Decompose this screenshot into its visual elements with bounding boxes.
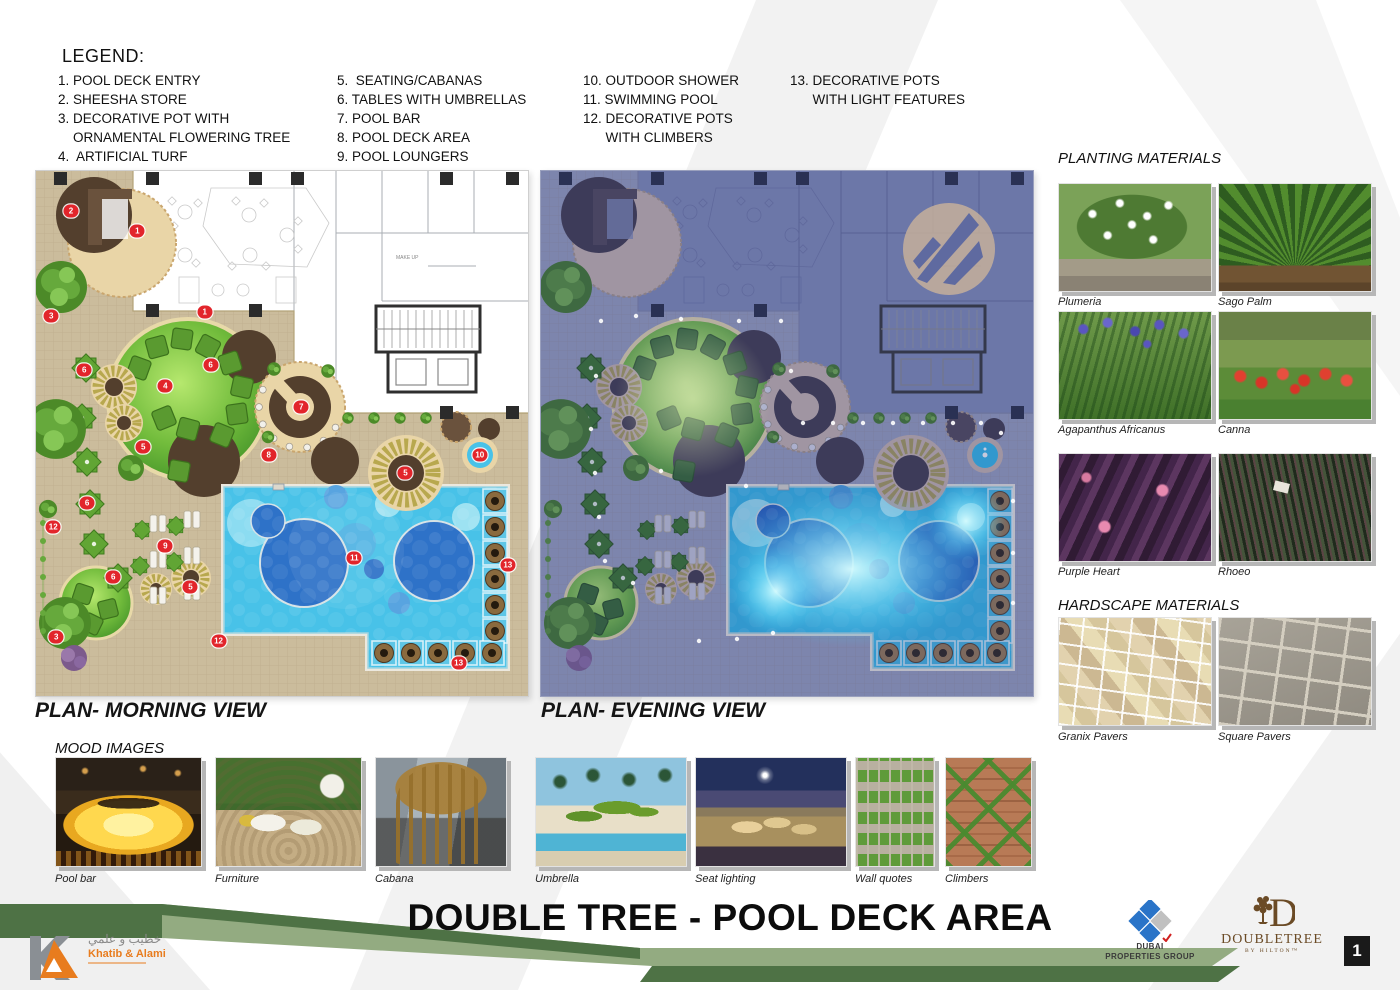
plan-marker: 13 [451, 656, 466, 669]
photo-sago-palm [1218, 183, 1372, 292]
photo-rhoeo [1218, 453, 1372, 562]
dubai-properties-logo-icon [1127, 900, 1173, 942]
photo-label: Rhoeo [1218, 566, 1250, 578]
photo-wall-quotes [855, 757, 935, 867]
khatib-alami-tagline-bar [88, 962, 146, 964]
dubai-logo-line1: DUBAI [1103, 942, 1197, 952]
khatib-alami-logo: خطيب و علمي Khatib & Alami [28, 932, 166, 982]
photo-canna [1218, 311, 1372, 420]
legend-title: LEGEND: [62, 46, 145, 67]
photo-label: Furniture [215, 873, 259, 885]
plan-marker: 12 [211, 634, 226, 647]
photo-label: Sago Palm [1218, 296, 1272, 308]
plan-marker: 3 [44, 310, 59, 323]
khatib-alami-name: Khatib & Alami [88, 948, 166, 960]
photo-square-pavers [1218, 617, 1372, 726]
hardscape-materials-title: HARDSCAPE MATERIALS [1058, 597, 1239, 614]
photo-label: Wall quotes [855, 873, 912, 885]
plan-marker: 5 [183, 580, 198, 593]
plan-marker: 1 [130, 225, 145, 238]
plan-marker: 1 [197, 305, 212, 318]
evening-view-label: PLAN- EVENING VIEW [541, 699, 765, 723]
photo-cabana [375, 757, 507, 867]
legend-column-3: 10. OUTDOOR SHOWER 11. SWIMMING POOL 12.… [583, 71, 739, 147]
plan-marker: 2 [63, 204, 78, 217]
plan-morning-view: 2113664785510612911136531213 [35, 170, 529, 697]
page-title: DOUBLE TREE - POOL DECK AREA [400, 897, 1060, 939]
plan-marker: 3 [49, 630, 64, 643]
plan-marker: 11 [347, 552, 362, 565]
photo-agapanthus [1058, 311, 1212, 420]
legend-column-1: 1. POOL DECK ENTRY 2. SHEESHA STORE 3. D… [58, 71, 290, 166]
plan-marker: 13 [500, 559, 515, 572]
photo-label: Pool bar [55, 873, 96, 885]
plan-marker: 6 [203, 358, 218, 371]
photo-label: Plumeria [1058, 296, 1101, 308]
plan-marker: 4 [158, 379, 173, 392]
plan-marker: 8 [261, 449, 276, 462]
plan-marker: 7 [294, 400, 309, 413]
photo-label: Granix Pavers [1058, 731, 1128, 743]
mood-images-title: MOOD IMAGES [55, 740, 164, 757]
plan-marker: 10 [472, 449, 487, 462]
photo-label: Umbrella [535, 873, 579, 885]
photo-label: Square Pavers [1218, 731, 1291, 743]
plan-marker: 12 [46, 521, 61, 534]
plan-marker: 5 [136, 441, 151, 454]
plan-evening-view [540, 170, 1034, 697]
plan-marker: 6 [80, 497, 95, 510]
photo-label: Canna [1218, 424, 1250, 436]
plan-marker: 6 [106, 571, 121, 584]
doubletree-logo-icon: D [1249, 892, 1295, 934]
morning-markers-layer: 2113664785510612911136531213 [36, 171, 528, 696]
svg-text:D: D [1269, 892, 1295, 934]
dubai-logo-line2: PROPERTIES GROUP [1103, 952, 1197, 962]
photo-label: Agapanthus Africanus [1058, 424, 1165, 436]
photo-label: Cabana [375, 873, 414, 885]
khatib-alami-arabic: خطيب و علمي [88, 932, 166, 946]
photo-pool-bar [55, 757, 202, 867]
doubletree-name: DOUBLETREE [1212, 932, 1332, 948]
photo-label: Seat lighting [695, 873, 756, 885]
photo-climbers [945, 757, 1032, 867]
plan-marker: 6 [77, 363, 92, 376]
khatib-alami-logo-icon [28, 932, 80, 982]
planting-materials-title: PLANTING MATERIALS [1058, 150, 1221, 167]
photo-label: Purple Heart [1058, 566, 1120, 578]
photo-seat-lighting [695, 757, 847, 867]
legend-column-2: 5. SEATING/CABANAS 6. TABLES WITH UMBREL… [337, 71, 526, 166]
photo-purple-heart [1058, 453, 1212, 562]
morning-view-label: PLAN- MORNING VIEW [35, 699, 266, 723]
photo-label: Climbers [945, 873, 988, 885]
page-number: 1 [1344, 936, 1370, 966]
legend-column-4: 13. DECORATIVE POTS WITH LIGHT FEATURES [790, 71, 965, 109]
photo-plumeria [1058, 183, 1212, 292]
plan-marker: 5 [398, 467, 413, 480]
photo-umbrella [535, 757, 687, 867]
presentation-board: MAKE UP [0, 0, 1400, 990]
photo-furniture [215, 757, 362, 867]
doubletree-logo: D DOUBLETREE BY HILTON™ [1212, 892, 1332, 954]
plan-marker: 9 [158, 540, 173, 553]
photo-granix-pavers [1058, 617, 1212, 726]
dubai-properties-logo: DUBAI PROPERTIES GROUP [1103, 900, 1197, 962]
doubletree-sub: BY HILTON™ [1212, 948, 1332, 954]
